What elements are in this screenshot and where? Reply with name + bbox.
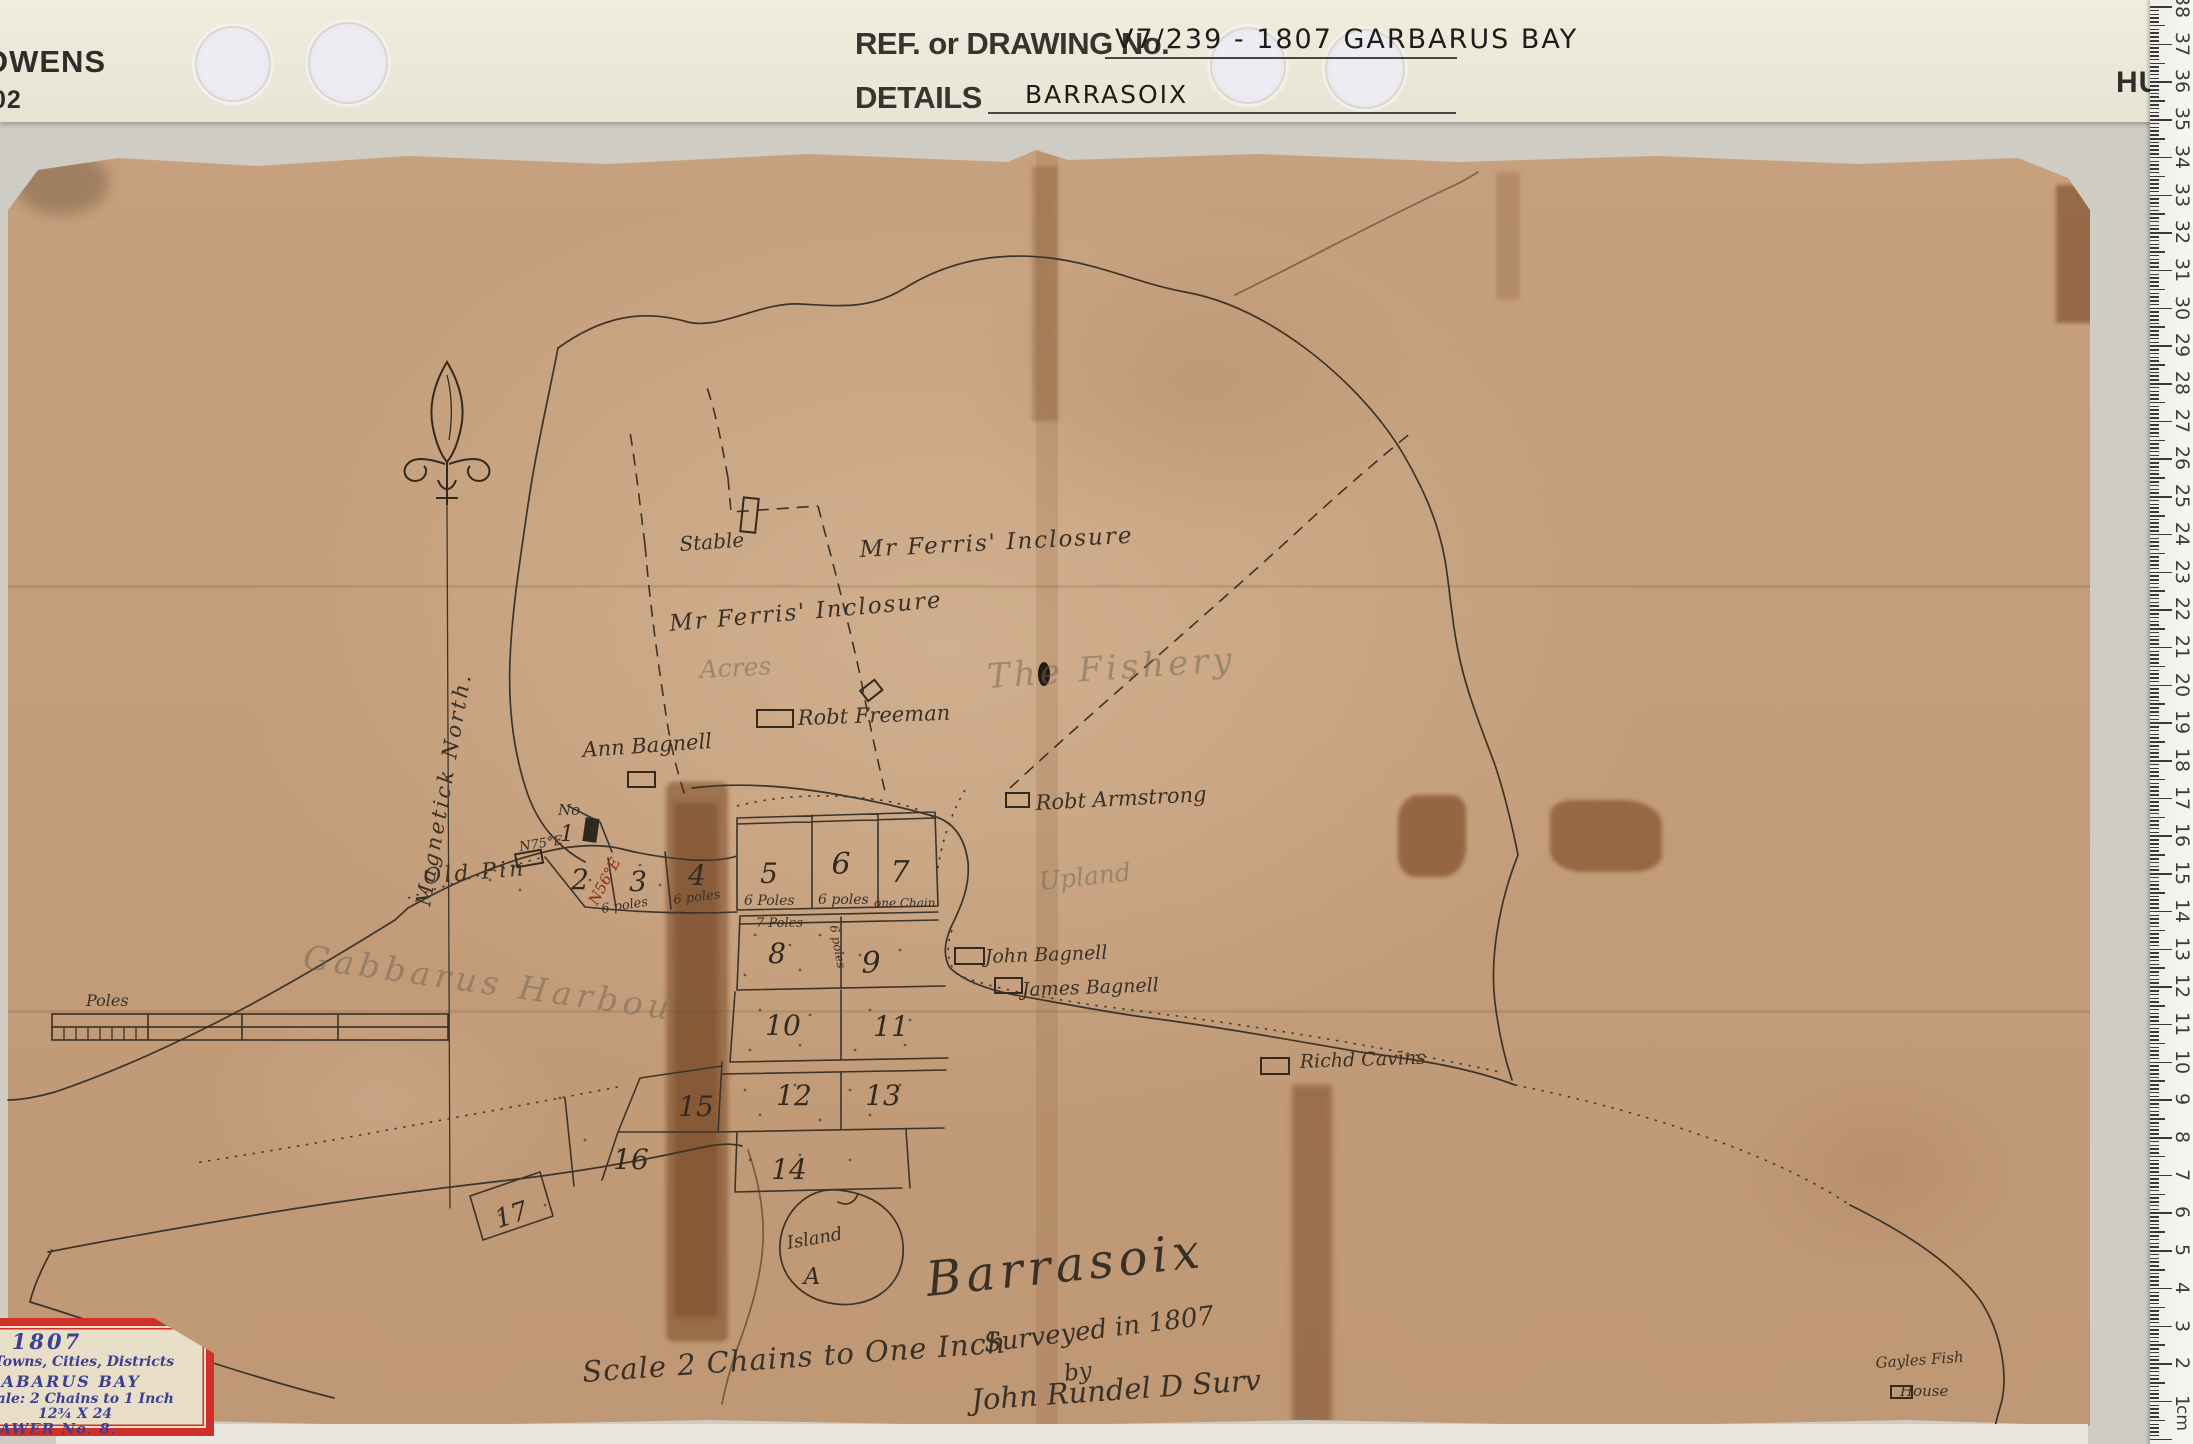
ruler-tick xyxy=(2150,210,2159,212)
ruler-tick xyxy=(2150,379,2159,381)
ruler-tick xyxy=(2150,956,2159,958)
ruler-number: 34 xyxy=(2172,146,2192,168)
ruler-tick xyxy=(2150,1047,2159,1049)
ruler-tick xyxy=(2150,1190,2159,1192)
ruler-tick xyxy=(2150,881,2159,883)
ruler-tick xyxy=(2150,670,2159,672)
ruler-tick xyxy=(2150,421,2172,423)
ruler-tick xyxy=(2150,66,2159,68)
ruler-tick xyxy=(2150,153,2159,155)
ruler-tick xyxy=(2150,1337,2159,1339)
ruler-number: 38 xyxy=(2172,0,2192,17)
ruler-tick xyxy=(2150,168,2159,170)
ruler-tick xyxy=(2150,1299,2159,1301)
ruler-tick xyxy=(2150,869,2159,871)
ruler-tick xyxy=(2150,1058,2159,1060)
ruler-tick xyxy=(2150,308,2172,310)
tape-stain xyxy=(1398,795,1466,877)
ruler-tick xyxy=(2150,406,2159,408)
ruler-tick xyxy=(2150,519,2159,521)
ruler-tick xyxy=(2150,609,2172,611)
ruler-tick xyxy=(2150,515,2165,517)
ruler-tick xyxy=(2150,1111,2159,1113)
ruler-tick xyxy=(2150,979,2159,981)
ruler-tick xyxy=(2150,1367,2159,1369)
ruler-tick xyxy=(2150,654,2159,656)
ruler-tick xyxy=(2150,1420,2165,1422)
ruler-tick xyxy=(2150,579,2159,581)
ruler-tick xyxy=(2150,1310,2159,1312)
ruler-tick xyxy=(2150,658,2159,660)
ruler-tick xyxy=(2150,59,2159,61)
ruler-tick xyxy=(2150,530,2159,532)
label-line-category: Towns, Cities, Districts xyxy=(0,1354,174,1370)
ink-blot xyxy=(1038,662,1050,686)
ruler-tick xyxy=(2150,1435,2159,1437)
ruler-tick xyxy=(2150,228,2159,230)
ruler-tick xyxy=(2150,1439,2172,1441)
ruler-tick xyxy=(2150,801,2159,803)
ruler-tick xyxy=(2150,1065,2159,1067)
ruler-tick xyxy=(2150,1020,2159,1022)
ruler-number: 16 xyxy=(2172,824,2192,846)
details-underline xyxy=(988,112,1456,114)
ruler-tick xyxy=(2150,556,2159,558)
ruler-tick xyxy=(2150,636,2159,638)
ruler-tick xyxy=(2150,455,2159,457)
ruler-number: 5 xyxy=(2172,1239,2192,1261)
ruler-tick xyxy=(2150,1122,2159,1124)
map-sheet-paper xyxy=(8,130,2090,1426)
ruler-tick xyxy=(2150,466,2159,468)
ruler-tick xyxy=(2150,195,2172,197)
ruler-tick xyxy=(2150,485,2159,487)
ruler-tick xyxy=(2150,213,2165,215)
ruler-tick xyxy=(2150,1378,2159,1380)
label-line-scale: Scale: 2 Chains to 1 Inch xyxy=(0,1391,174,1407)
ruler-tick xyxy=(2150,436,2159,438)
ruler-tick xyxy=(2150,1156,2165,1158)
ruler-tick xyxy=(2150,1261,2159,1263)
ruler-tick xyxy=(2150,1258,2159,1260)
ruler-tick xyxy=(2150,462,2159,464)
ruler-number: 18 xyxy=(2172,749,2192,771)
ruler-tick xyxy=(2150,338,2159,340)
ruler-tick xyxy=(2150,847,2159,849)
ruler-tick xyxy=(2150,85,2159,87)
ruler-tick xyxy=(2150,1292,2159,1294)
ruler-tick xyxy=(2150,1092,2159,1094)
ruler-tick xyxy=(2150,858,2159,860)
ruler-tick xyxy=(2150,368,2159,370)
ruler-tick xyxy=(2150,982,2159,984)
ruler-tick xyxy=(2150,428,2159,430)
ruler-tick xyxy=(2150,55,2159,57)
ruler-tick xyxy=(2150,1152,2159,1154)
ruler-tick xyxy=(2150,1103,2159,1105)
ruler-tick xyxy=(2150,1269,2165,1271)
ruler-tick xyxy=(2150,1307,2165,1309)
ruler-tick xyxy=(2150,142,2159,144)
ruler-tick xyxy=(2150,217,2159,219)
ruler-tick xyxy=(2150,108,2159,110)
ruler-tick xyxy=(2150,417,2159,419)
ruler-tick xyxy=(2150,1371,2159,1373)
ruler-tick xyxy=(2150,1254,2159,1256)
ruler-tick xyxy=(2150,1265,2159,1267)
ruler-tick xyxy=(2150,326,2165,328)
ruler-tick xyxy=(2150,157,2172,159)
ruler-tick xyxy=(2150,477,2165,479)
ruler-tick xyxy=(2150,1005,2165,1007)
ruler-number: 8 xyxy=(2172,1126,2192,1148)
ruler-tick xyxy=(2150,51,2159,53)
ruler-tick xyxy=(2150,100,2165,102)
ruler-tick xyxy=(2150,1390,2159,1392)
ruler-number: 11 xyxy=(2172,1013,2192,1035)
ruler-tick xyxy=(2150,413,2159,415)
ruler-tick xyxy=(2150,470,2159,472)
ruler-tick xyxy=(2150,402,2165,404)
ruler-tick xyxy=(2150,1216,2159,1218)
ruler-tick xyxy=(2150,262,2159,264)
ruler-tick xyxy=(2150,394,2159,396)
ruler-number: 36 xyxy=(2172,70,2192,92)
ruler-tick xyxy=(2150,621,2159,623)
ruler-tick xyxy=(2150,752,2159,754)
ruler-tick xyxy=(2150,1031,2159,1033)
ruler-tick xyxy=(2150,526,2159,528)
ruler-number: 4 xyxy=(2172,1277,2192,1299)
ruler-number: 19 xyxy=(2172,711,2192,733)
ruler-tick xyxy=(2150,300,2159,302)
ruler-tick xyxy=(2150,458,2172,460)
ruler-tick xyxy=(2150,198,2159,200)
details-field-value: BARRASOIX xyxy=(1025,80,1188,109)
ruler-tick xyxy=(2150,206,2159,208)
ruler-tick xyxy=(2150,164,2159,166)
ruler-tick xyxy=(2150,922,2159,924)
ruler-tick xyxy=(2150,1408,2159,1410)
ruler-tick xyxy=(2150,21,2159,23)
ruler-tick xyxy=(2150,617,2159,619)
ruler-tick xyxy=(2150,74,2159,76)
ruler-tick xyxy=(2150,888,2159,890)
ruler-tick xyxy=(2150,786,2159,788)
ruler-tick xyxy=(2150,862,2159,864)
ruler-tick xyxy=(2150,183,2159,185)
ruler-tick xyxy=(2150,534,2172,536)
ruler-tick xyxy=(2150,25,2165,27)
ruler-tick xyxy=(2150,451,2159,453)
ruler-tick xyxy=(2150,843,2159,845)
ruler-tick xyxy=(2150,1201,2159,1203)
ruler-tick xyxy=(2150,768,2159,770)
ruler-tick xyxy=(2150,247,2159,249)
ruler-tick xyxy=(2150,726,2159,728)
ruler-tick xyxy=(2150,1126,2159,1128)
ruler-tick xyxy=(2150,89,2159,91)
ruler-tick xyxy=(2150,1231,2165,1233)
ruler-number: 20 xyxy=(2172,674,2192,696)
ruler-tick xyxy=(2150,96,2159,98)
ruler-tick xyxy=(2150,440,2165,442)
ruler-tick xyxy=(2150,10,2159,12)
tape-stain xyxy=(1032,166,1058,421)
ruler-tick xyxy=(2150,1288,2172,1290)
ruler-tick xyxy=(2150,594,2159,596)
ruler-tick xyxy=(2150,715,2159,717)
ruler-tick xyxy=(2150,945,2159,947)
ruler-tick xyxy=(2150,1322,2159,1324)
ruler-tick xyxy=(2150,1084,2159,1086)
ruler-tick xyxy=(2150,798,2172,800)
ruler-tick xyxy=(2150,828,2159,830)
ruler-number: 23 xyxy=(2172,561,2192,583)
brand-owens: OWENS xyxy=(0,44,106,80)
ref-field-value: V7/239 - 1807 GARBARUS BAY xyxy=(1115,24,1578,55)
ruler-tick xyxy=(2150,628,2165,630)
ruler-tick xyxy=(2150,63,2165,65)
ruler-tick xyxy=(2150,274,2159,276)
ruler-tick xyxy=(2150,538,2159,540)
ruler-tick xyxy=(2150,244,2159,246)
ruler-tick xyxy=(2150,1224,2159,1226)
ruler-tick xyxy=(2150,632,2159,634)
ruler-tick xyxy=(2150,568,2159,570)
ruler-number: 21 xyxy=(2172,636,2192,658)
ruler-tick xyxy=(2150,598,2159,600)
ruler-tick xyxy=(2150,1186,2159,1188)
ruler-tick xyxy=(2150,1276,2159,1278)
ruler-tick xyxy=(2150,1273,2159,1275)
ruler-tick xyxy=(2150,1205,2159,1207)
ruler-number: 7 xyxy=(2172,1164,2192,1186)
ruler-tick xyxy=(2150,93,2159,95)
ruler-tick xyxy=(2150,47,2159,49)
ruler-tick xyxy=(2150,1359,2159,1361)
ruler-tick xyxy=(2150,839,2159,841)
ref-underline xyxy=(1105,57,1457,59)
ruler-tick xyxy=(2150,1148,2159,1150)
ruler-tick xyxy=(2150,293,2159,295)
ruler-number: 30 xyxy=(2172,297,2192,319)
ruler-tick xyxy=(2150,424,2159,426)
ruler-number: 27 xyxy=(2172,410,2192,432)
ruler-tick xyxy=(2150,334,2159,336)
ruler-tick xyxy=(2150,899,2159,901)
ruler-tick xyxy=(2150,873,2172,875)
ruler-tick xyxy=(2150,952,2159,954)
ruler-tick xyxy=(2150,481,2159,483)
ruler-tick xyxy=(2150,681,2159,683)
ruler-tick xyxy=(2150,1303,2159,1305)
ruler-number: 9 xyxy=(2172,1088,2192,1110)
ruler-tick xyxy=(2150,1412,2159,1414)
ruler-tick xyxy=(2150,1167,2159,1169)
ruler-tick xyxy=(2150,1096,2159,1098)
ruler-tick xyxy=(2150,1171,2159,1173)
ruler-tick xyxy=(2150,854,2165,856)
ruler-tick xyxy=(2150,1039,2159,1041)
ruler-tick xyxy=(2150,783,2159,785)
ruler-tick xyxy=(2150,17,2159,19)
ruler-tick xyxy=(2150,775,2159,777)
label-line-drawer: DRAWER No. 8. xyxy=(0,1420,117,1438)
ruler-tick xyxy=(2150,1314,2159,1316)
ruler-tick xyxy=(2150,790,2159,792)
ruler-tick xyxy=(2150,590,2165,592)
ruler-tick xyxy=(2150,1088,2159,1090)
ruler-tick xyxy=(2150,123,2159,125)
ruler-tick xyxy=(2150,832,2159,834)
ruler-tick xyxy=(2150,1118,2165,1120)
ruler-tick xyxy=(2150,696,2159,698)
fold-crease-horizontal xyxy=(8,1010,2090,1013)
ruler-tick xyxy=(2150,850,2159,852)
ruler-tick xyxy=(2150,1250,2172,1252)
ruler-number: 2 xyxy=(2172,1352,2192,1374)
ruler-tick xyxy=(2150,176,2165,178)
ruler-number: 32 xyxy=(2172,221,2192,243)
ruler-tick xyxy=(2150,1382,2165,1384)
ruler-tick xyxy=(2150,161,2159,163)
ruler-tick xyxy=(2150,896,2159,898)
ruler-tick xyxy=(2150,130,2159,132)
ruler-tick xyxy=(2150,1001,2159,1003)
ruler-tick xyxy=(2150,1246,2159,1248)
ruler-tick xyxy=(2150,560,2159,562)
ruler-tick xyxy=(2150,259,2159,261)
ruler-tick xyxy=(2150,345,2172,347)
ruler-tick xyxy=(2150,930,2165,932)
ruler-tick xyxy=(2150,575,2159,577)
ruler-tick xyxy=(2150,1073,2159,1075)
ruler-tick xyxy=(2150,994,2159,996)
ruler-tick xyxy=(2150,187,2159,189)
ruler-tick xyxy=(2150,277,2159,279)
ruler-tick xyxy=(2150,1243,2159,1245)
label-year: 1807 xyxy=(0,1329,152,1354)
ruler-tick xyxy=(2150,624,2159,626)
ruler-tick xyxy=(2150,1178,2159,1180)
ruler-number: 33 xyxy=(2172,184,2192,206)
ruler-number: 29 xyxy=(2172,334,2192,356)
ruler-tick xyxy=(2150,1145,2159,1147)
ruler-tick xyxy=(2150,918,2159,920)
ruler-tick xyxy=(2150,975,2159,977)
ruler-tick xyxy=(2150,986,2172,988)
ruler-tick xyxy=(2150,949,2172,951)
ruler-tick xyxy=(2150,1431,2159,1433)
ruler-tick xyxy=(2150,398,2159,400)
ruler-tick xyxy=(2150,749,2159,751)
ruler-tick xyxy=(2150,756,2159,758)
ruler-tick xyxy=(2150,522,2159,524)
ruler-tick xyxy=(2150,504,2159,506)
ruler-number: 14 xyxy=(2172,900,2192,922)
ruler-number: 6 xyxy=(2172,1201,2192,1223)
ruler-tick xyxy=(2150,662,2159,664)
ruler-tick xyxy=(2150,1356,2159,1358)
ruler-tick xyxy=(2150,677,2159,679)
ruler-tick xyxy=(2150,319,2159,321)
ruler-unit-label: cm xyxy=(2172,1407,2192,1429)
ruler-tick xyxy=(2150,820,2159,822)
ruler-tick xyxy=(2150,745,2159,747)
punch-hole xyxy=(308,22,388,104)
ruler-tick xyxy=(2150,605,2159,607)
ruler-tick xyxy=(2150,771,2159,773)
ruler-tick xyxy=(2150,511,2159,513)
ruler-tick xyxy=(2150,707,2159,709)
ruler-tick xyxy=(2150,149,2159,151)
ruler-tick xyxy=(2150,764,2159,766)
ruler-tick xyxy=(2150,719,2159,721)
ruler-tick xyxy=(2150,1235,2159,1237)
ruler-tick xyxy=(2150,1043,2165,1045)
ruler-tick xyxy=(2150,1329,2159,1331)
ruler-tick xyxy=(2150,1028,2159,1030)
ruler-number: 25 xyxy=(2172,485,2192,507)
ruler-tick xyxy=(2150,541,2159,543)
ruler-tick xyxy=(2150,779,2165,781)
fold-crease-horizontal xyxy=(8,585,2090,588)
ruler-tick xyxy=(2150,1069,2159,1071)
ruler-tick xyxy=(2150,349,2159,351)
ruler-tick xyxy=(2150,1194,2165,1196)
ruler-tick xyxy=(2150,911,2172,913)
tape-stain xyxy=(674,802,718,1317)
ruler-tick xyxy=(2150,703,2165,705)
ruler-tick xyxy=(2150,692,2159,694)
ruler-tick xyxy=(2150,315,2159,317)
ruler-tick xyxy=(2150,866,2159,868)
ruler-tick xyxy=(2150,409,2159,411)
ruler-tick xyxy=(2150,1212,2172,1214)
ruler-tick xyxy=(2150,240,2159,242)
tape-stain xyxy=(1550,800,1662,872)
ruler-tick xyxy=(2150,496,2172,498)
ruler-tick xyxy=(2150,971,2159,973)
ruler-tick xyxy=(2150,1295,2159,1297)
ruler-number: 12 xyxy=(2172,975,2192,997)
ruler-tick xyxy=(2150,119,2172,121)
ruler-tick xyxy=(2150,1405,2159,1407)
ruler-tick xyxy=(2150,1016,2159,1018)
ruler-tick xyxy=(2150,1348,2159,1350)
ruler-tick xyxy=(2150,145,2159,147)
ruler-tick xyxy=(2150,564,2159,566)
label-line-place: GABARUS BAY xyxy=(0,1372,141,1391)
ruler-tick xyxy=(2150,44,2172,46)
ruler-tick xyxy=(2150,492,2159,494)
ruler-tick xyxy=(2150,221,2159,223)
tape-stain xyxy=(666,782,728,1342)
ruler-tick xyxy=(2150,32,2159,34)
ruler-tick xyxy=(2150,1137,2172,1139)
ruler-tick xyxy=(2150,960,2159,962)
ruler-tick xyxy=(2150,500,2159,502)
ruler-tick xyxy=(2150,1114,2159,1116)
ruler-tick xyxy=(2150,473,2159,475)
ruler-tick xyxy=(2150,507,2159,509)
ruler-tick xyxy=(2150,926,2159,928)
ruler-tick xyxy=(2150,884,2159,886)
ruler-tick xyxy=(2150,549,2159,551)
ruler-tick xyxy=(2150,70,2159,72)
ruler-tick xyxy=(2150,372,2159,374)
